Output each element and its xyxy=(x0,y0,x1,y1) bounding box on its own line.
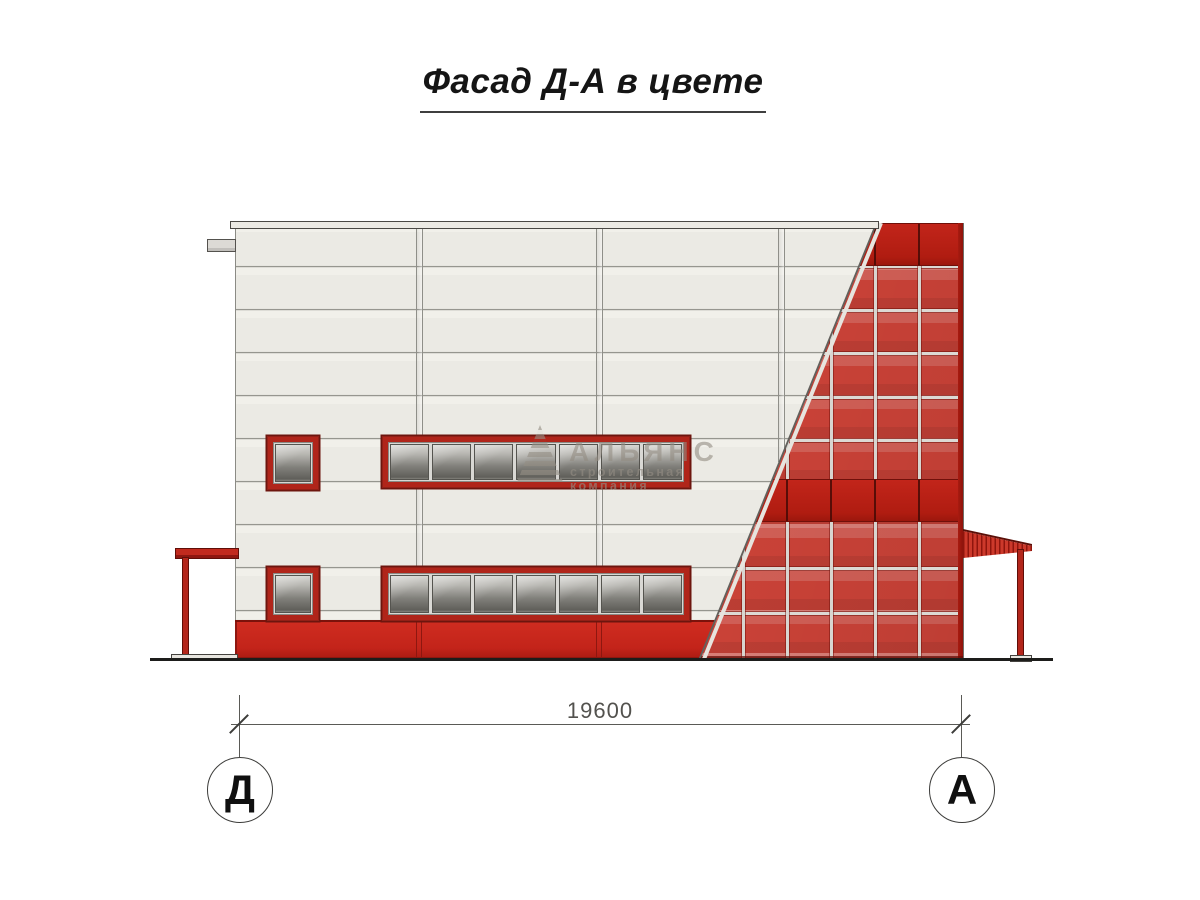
glass-pane xyxy=(601,444,640,480)
glass-pane xyxy=(432,575,471,613)
glass-pane xyxy=(601,575,640,613)
parapet-cap xyxy=(230,221,879,229)
glass-pane xyxy=(275,444,311,482)
glass-pane xyxy=(516,575,555,613)
building-elevation xyxy=(235,223,963,659)
mullion-vertical xyxy=(874,223,877,659)
window-glass xyxy=(390,444,682,480)
drawing-title: Фасад Д-А в цвете xyxy=(420,62,766,113)
glass-pane xyxy=(432,444,471,480)
dimension-line xyxy=(231,724,970,725)
window-trim xyxy=(273,573,313,615)
right-canopy-post xyxy=(1018,550,1023,657)
dimension-extension-left xyxy=(239,695,240,757)
dimension-extension-right xyxy=(961,695,962,757)
facade-drawing-sheet: Фасад Д-А в цвете xyxy=(0,0,1200,900)
plinth-joint xyxy=(416,622,422,659)
glass-pane xyxy=(390,575,429,613)
window-trim xyxy=(273,442,313,484)
window-glass xyxy=(275,444,311,482)
left-canopy-beam xyxy=(176,549,238,558)
glass-pane xyxy=(559,575,598,613)
window-trim xyxy=(388,573,684,615)
axis-marker-d: Д xyxy=(207,757,273,823)
plinth-strip xyxy=(235,620,717,659)
glass-pane xyxy=(474,575,513,613)
left-canopy-post xyxy=(183,558,188,656)
building-right-outline xyxy=(963,223,965,659)
dimension-value: 19600 xyxy=(500,698,700,724)
glass-pane xyxy=(559,444,598,480)
window-small-lower xyxy=(267,567,319,621)
glass-pane xyxy=(643,444,682,480)
window-glass xyxy=(275,575,311,613)
facade-panel-joint xyxy=(416,229,423,620)
glass-pane xyxy=(516,444,555,480)
facade-panel-joint xyxy=(596,229,603,620)
facade-panel-joint xyxy=(778,229,785,462)
axis-marker-a: А xyxy=(929,757,995,823)
plinth-joint xyxy=(596,622,602,659)
window-strip-upper xyxy=(382,436,690,488)
mullion-vertical xyxy=(918,223,921,659)
glass-pane xyxy=(275,575,311,613)
window-glass xyxy=(390,575,682,613)
glass-pane xyxy=(474,444,513,480)
window-strip-lower xyxy=(382,567,690,621)
ground-line xyxy=(150,658,1053,661)
glass-pane xyxy=(643,575,682,613)
drain-outlet xyxy=(207,239,236,252)
window-small-upper xyxy=(267,436,319,490)
window-trim xyxy=(388,442,684,482)
glass-pane xyxy=(390,444,429,480)
